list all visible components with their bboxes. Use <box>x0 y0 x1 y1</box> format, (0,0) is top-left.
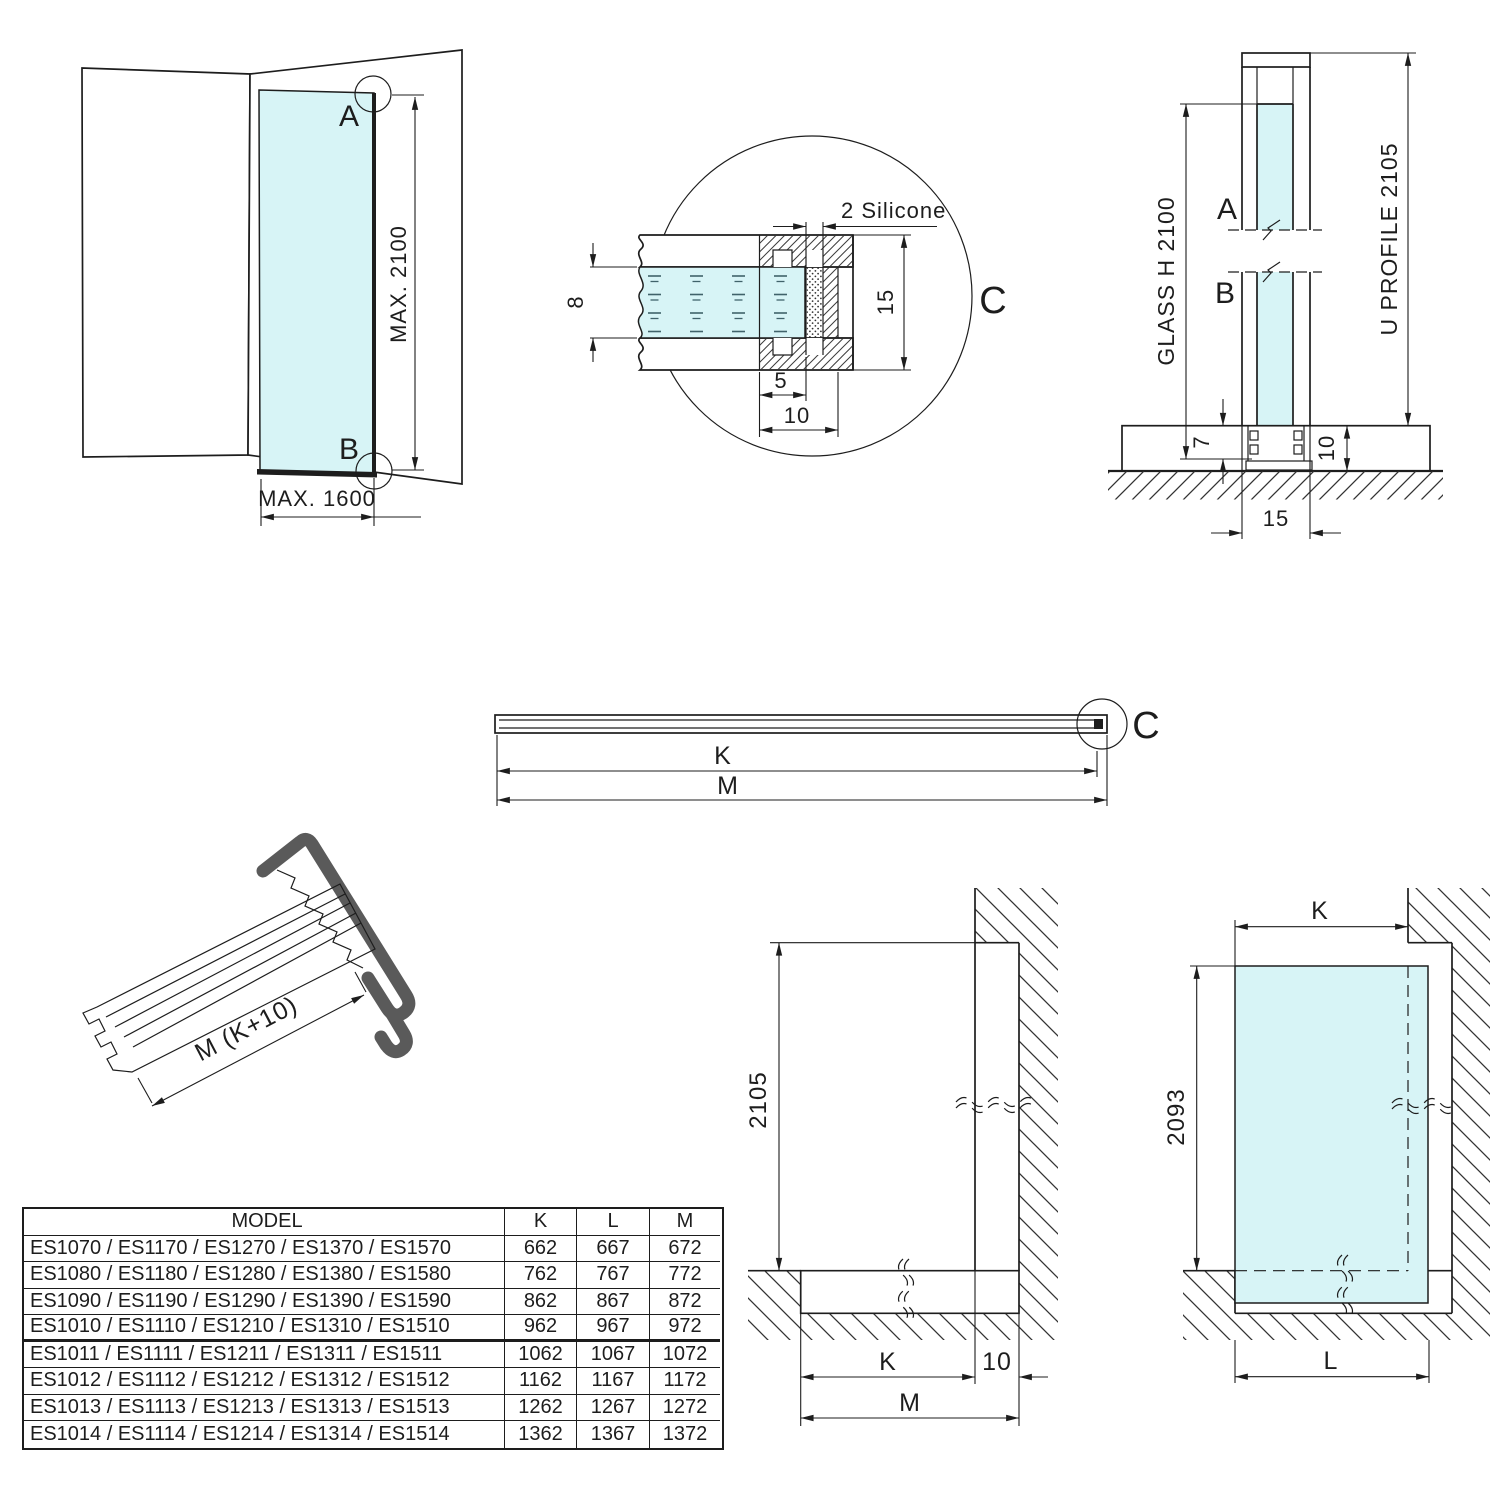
l-cell: 1067 <box>577 1342 650 1369</box>
glass-inset-dim: 7 <box>1189 435 1214 448</box>
glass-height-dim: 2093 <box>1163 1088 1190 1145</box>
size-table: MODEL K L M ES1070 / ES1170 / ES1270 / E… <box>22 1207 724 1450</box>
corner-view-drawing: A B MAX. 2100 MAX. 1600 <box>82 50 462 526</box>
glass-elevation-drawing: K 2093 L <box>1163 888 1490 1383</box>
m-cell: 672 <box>650 1236 720 1263</box>
max-height-dim: MAX. 2100 <box>386 225 411 343</box>
table-header-l: L <box>577 1209 650 1236</box>
opening-gap-dim: 10 <box>982 1348 1012 1376</box>
profile-m-dim: M <box>717 772 739 800</box>
k-cell: 1162 <box>505 1368 577 1395</box>
m-cell: 972 <box>650 1315 720 1342</box>
glass-height-dim: GLASS H 2100 <box>1153 196 1179 365</box>
k-cell: 1062 <box>505 1342 577 1369</box>
opening-m-dim: M <box>899 1389 921 1417</box>
left-wall <box>82 68 250 457</box>
profile-top-view-drawing: C K M <box>495 699 1160 806</box>
glass-panel-front <box>1235 966 1428 1303</box>
table-header-m: M <box>650 1209 720 1236</box>
inner-depth-dim: 5 <box>774 368 787 393</box>
base-height-dim: 10 <box>1314 435 1339 461</box>
glass-upper <box>1257 104 1293 230</box>
k-cell: 1262 <box>505 1395 577 1422</box>
base-width-dim: 15 <box>1263 506 1289 531</box>
model-cell: ES1080 / ES1180 / ES1280 / ES1380 / ES15… <box>24 1262 505 1289</box>
m-cell: 772 <box>650 1262 720 1289</box>
l-cell: 967 <box>577 1315 650 1342</box>
silicone-seal <box>807 267 823 338</box>
detail-c-drawing: 8 15 2 Silicone 5 10 C <box>563 136 1007 456</box>
opening-elevation-drawing: 2105 K 10 M <box>745 888 1058 1426</box>
opening-height-dim: 2105 <box>745 1071 772 1128</box>
glass-l-dim: L <box>1324 1347 1339 1375</box>
model-cell: ES1011 / ES1111 / ES1211 / ES1311 / ES15… <box>24 1342 505 1369</box>
outer-depth-dim: 10 <box>784 403 810 428</box>
glass-k-dim: K <box>1311 897 1329 925</box>
profile-k-dim: K <box>714 742 732 770</box>
opening-k-dim: K <box>879 1348 897 1376</box>
k-cell: 862 <box>505 1289 577 1316</box>
model-cell: ES1070 / ES1170 / ES1270 / ES1370 / ES15… <box>24 1236 505 1263</box>
k-cell: 962 <box>505 1315 577 1342</box>
table-header-k: K <box>505 1209 577 1236</box>
section-view-drawing: A B GLASS H 2100 U PROFILE 2105 7 10 15 <box>1108 53 1443 539</box>
m-cell: 1072 <box>650 1342 720 1369</box>
profile-cross-section-symbol <box>263 839 409 1015</box>
u-profile-dim: U PROFILE 2105 <box>1376 143 1402 336</box>
profile-3d-drawing: M (K+10) <box>83 839 409 1106</box>
k-cell: 1362 <box>505 1421 577 1448</box>
glass-panel <box>259 90 374 473</box>
m-cell: 1372 <box>650 1421 720 1448</box>
section-label-b: B <box>1215 277 1235 310</box>
profile-c-label: C <box>1132 705 1159 747</box>
table-header-model: MODEL <box>24 1209 505 1236</box>
detail-c-label: C <box>979 280 1006 322</box>
k-cell: 662 <box>505 1236 577 1263</box>
floor-profile <box>801 1271 1019 1314</box>
corner-label-a: A <box>339 100 359 133</box>
glass-thickness-dim: 8 <box>563 295 588 308</box>
model-cell: ES1010 / ES1110 / ES1210 / ES1310 / ES15… <box>24 1315 505 1342</box>
model-cell: ES1090 / ES1190 / ES1290 / ES1390 / ES15… <box>24 1289 505 1316</box>
model-cell: ES1012 / ES1112 / ES1212 / ES1312 / ES15… <box>24 1368 505 1395</box>
max-width-dim: MAX. 1600 <box>258 486 376 511</box>
technical-drawing-sheet: A B MAX. 2100 MAX. 1600 8 <box>0 0 1500 1500</box>
m-cell: 872 <box>650 1289 720 1316</box>
model-cell: ES1013 / ES1113 / ES1213 / ES1313 / ES15… <box>24 1395 505 1422</box>
l-cell: 867 <box>577 1289 650 1316</box>
l-cell: 1267 <box>577 1395 650 1422</box>
k-cell: 762 <box>505 1262 577 1289</box>
m-cell: 1172 <box>650 1368 720 1395</box>
l-cell: 1167 <box>577 1368 650 1395</box>
l-cell: 767 <box>577 1262 650 1289</box>
profile-height-dim: 15 <box>873 289 898 315</box>
l-cell: 1367 <box>577 1421 650 1448</box>
model-cell: ES1014 / ES1114 / ES1214 / ES1314 / ES15… <box>24 1421 505 1448</box>
profile-length-dim: M (K+10) <box>190 991 302 1067</box>
section-label-a: A <box>1217 193 1237 226</box>
corner-label-b: B <box>339 433 359 466</box>
l-cell: 667 <box>577 1236 650 1263</box>
m-cell: 1272 <box>650 1395 720 1422</box>
silicone-note: 2 Silicone <box>841 198 946 223</box>
